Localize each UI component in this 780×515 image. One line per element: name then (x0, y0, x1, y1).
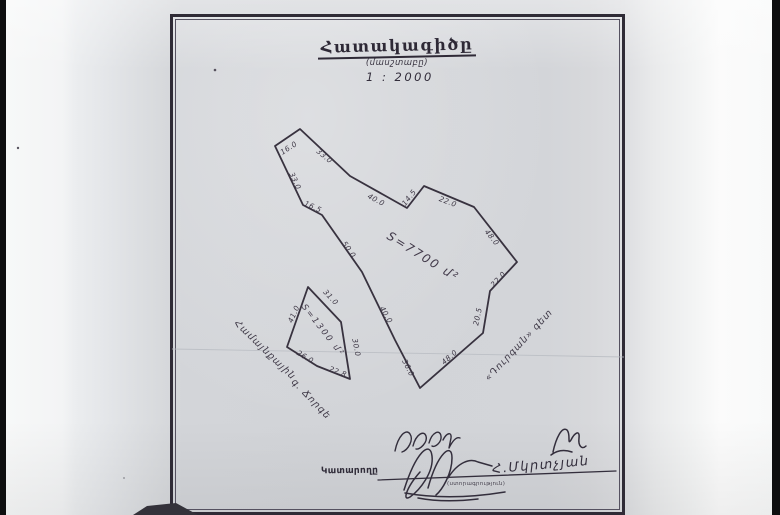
scanned-plan-document: Հատակագիծը (մասշտաբը) 1 : 2000 16.033.04… (0, 0, 780, 515)
edge-measurement-label: 30.0 (350, 338, 362, 358)
executor-label: Կատարողը (321, 466, 378, 476)
edge-measurement-label: 50.0 (340, 240, 358, 260)
handwritten-annotation: «Դուրգան» գետ (483, 307, 555, 383)
parcel-area-label: S=7700 մ² (384, 229, 461, 285)
edge-measurement-label: 33.0 (287, 171, 303, 191)
edge-measurement-label: 33.0 (315, 147, 335, 166)
edge-measurement-label: 40.0 (378, 305, 395, 325)
signature-flourish (551, 429, 586, 455)
edge-measurement-label: 48.0 (483, 228, 501, 248)
edge-measurement-label: 16.5 (303, 199, 323, 215)
parcel-large (275, 129, 517, 388)
dust-speck (123, 477, 125, 479)
parcel-area-label: S=1300 մ² (299, 303, 346, 359)
edge-measurement-label: 22.8 (328, 364, 348, 379)
edge-measurement-label: 22.0 (489, 270, 508, 289)
edge-measurement-label: 20.5 (471, 307, 484, 327)
dust-speck (17, 147, 19, 149)
page-corner-shadow (133, 503, 198, 515)
dust-speck (214, 69, 217, 72)
handwritten-annotation: գ. Ճորգե (289, 377, 333, 422)
plan-drawing: 16.033.040.014.522.048.022.020.548.036.0… (0, 0, 780, 515)
signature-scribble (404, 449, 505, 501)
scan-artifact-line (172, 349, 624, 357)
signature-note: (ստորագրություն) (447, 481, 505, 487)
edge-measurement-label: 36.0 (400, 358, 416, 378)
edge-measurement-label: 22.0 (438, 194, 458, 209)
